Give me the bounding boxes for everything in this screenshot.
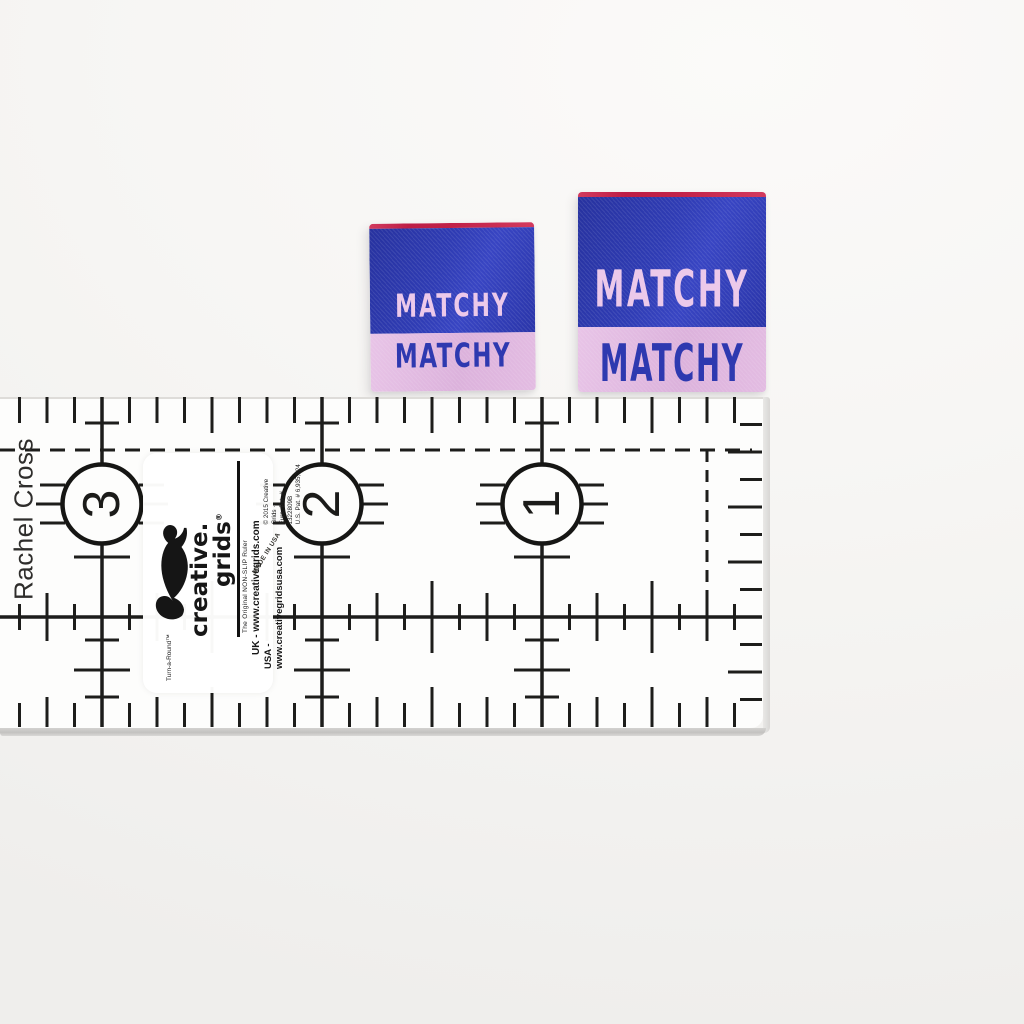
ruler-markings: 3 2 1: [0, 397, 763, 728]
quilting-ruler: 3 2 1: [0, 397, 763, 728]
label-blue-section: MATCHY: [369, 227, 535, 334]
brand-divider-line: [237, 461, 240, 637]
brand-wordmark-grids: grids: [210, 521, 236, 587]
brand-patent-block: © 2015 Creative Grids · Euro. Pat. # 132…: [263, 463, 304, 524]
owner-name-text: Rachel Cross: [7, 432, 41, 607]
label-text-top: MATCHY: [594, 261, 749, 321]
squirrel-logo-icon: [149, 511, 189, 633]
label-pink-section: MATCHY: [370, 332, 536, 392]
brand-us-patent: U.S. Pat. # 6,935,724: [295, 463, 303, 524]
label-blue-section: MATCHY: [578, 197, 766, 327]
turn-a-round-text: Turn-a-Round™: [166, 634, 173, 681]
brand-bottom-row: USA - www.creativegridsusa.com © 2015 Cr…: [263, 463, 304, 669]
label-text-bottom: MATCHY: [395, 337, 512, 376]
label-pink-section: MATCHY: [578, 327, 766, 392]
product-photo-scene: MATCHY MATCHY MATCHY MATCHY 3 2 1 Turn-a…: [0, 0, 1024, 1024]
registered-mark: ®: [214, 513, 223, 521]
ruler-number-1: 1: [513, 490, 571, 519]
label-text-bottom: MATCHY: [600, 333, 744, 392]
brand-copyright: © 2015 Creative Grids ·: [263, 463, 279, 524]
brand-wordmark-line2: grids®: [212, 463, 235, 587]
brand-euro-patent: Euro. Pat. # 1322809B: [279, 463, 295, 524]
brand-tagline: The Original NON-SLIP Ruler: [242, 463, 249, 633]
matchy-label-large: MATCHY MATCHY: [578, 192, 766, 392]
matchy-label-small: MATCHY MATCHY: [369, 222, 536, 392]
ruler-tick-group: [0, 397, 763, 727]
brand-wordmark-line1: creative.: [189, 463, 212, 637]
ruler-number-3: 3: [73, 490, 131, 519]
label-text-top: MATCHY: [395, 288, 510, 325]
brand-logo-row: Turn-a-Round™: [149, 463, 189, 683]
